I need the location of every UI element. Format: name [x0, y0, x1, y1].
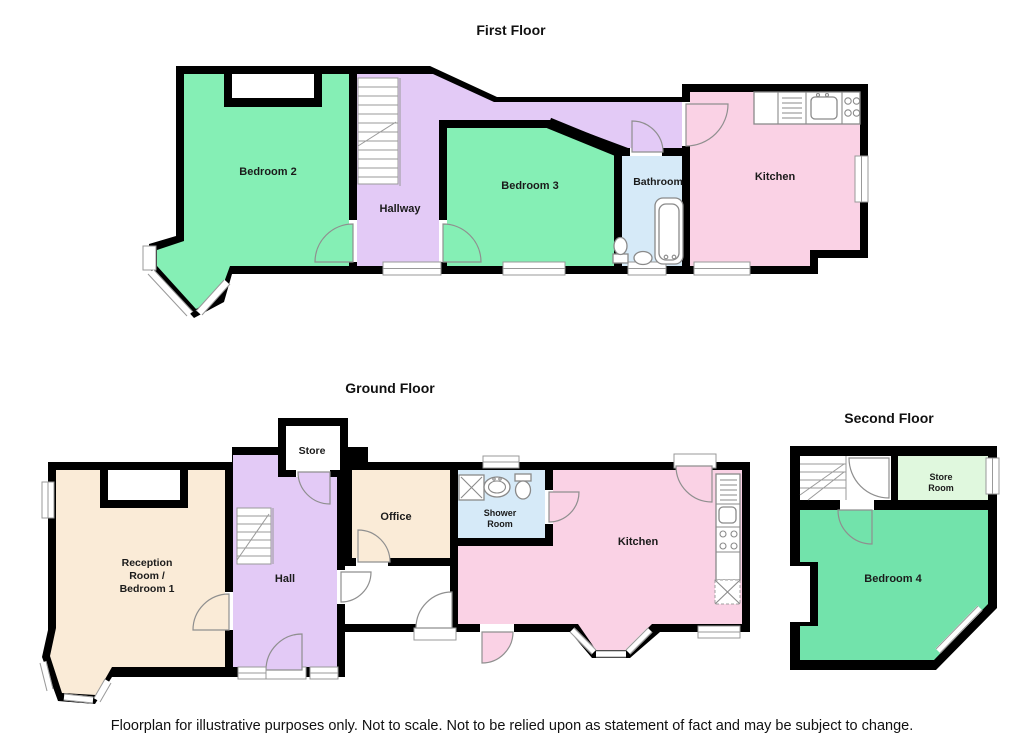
label-shower-2: Room — [487, 519, 513, 529]
kitchen-counter-icon — [754, 92, 860, 124]
label-reception-3: Bedroom 1 — [120, 583, 175, 595]
label-kitchen-gf: Kitchen — [618, 536, 659, 548]
wall — [447, 120, 553, 128]
disclaimer-text: Floorplan for illustrative purposes only… — [0, 718, 1024, 734]
chimney-inset-inner — [232, 74, 314, 98]
second-floor-plan: Store Room Bedroom 4 — [790, 446, 999, 670]
label-bedroom4: Bedroom 4 — [864, 573, 922, 585]
ground-floor-plan: Reception Room / Bedroom 1 Hall Store Of… — [40, 418, 750, 704]
sink-icon — [634, 252, 652, 265]
chimney-inset-inner — [108, 470, 180, 500]
label-office: Office — [380, 511, 411, 523]
toilet-icon — [613, 238, 628, 264]
doorway-frame — [414, 628, 456, 640]
stairs-ground-floor — [237, 508, 273, 564]
label-bedroom2: Bedroom 2 — [239, 166, 296, 178]
sink-icon — [484, 477, 510, 497]
wall — [225, 464, 233, 667]
first-floor-plan: Bedroom 2 Hallway Bedroom 3 Bathroom Kit… — [143, 66, 868, 318]
label-hallway: Hallway — [380, 203, 422, 215]
label-reception-1: Reception — [122, 557, 173, 569]
stairs-first-floor — [358, 78, 400, 186]
label-bathroom: Bathroom — [633, 176, 683, 188]
toilet-icon — [515, 474, 531, 499]
floorplan-page: First Floor Ground Floor Second Floor — [0, 0, 1024, 744]
door-gap — [840, 500, 874, 510]
label-store-room-2: Room — [928, 483, 954, 493]
label-shower-1: Shower — [484, 508, 517, 518]
label-kitchen-ff: Kitchen — [755, 171, 796, 183]
door-gap — [480, 624, 514, 632]
label-store-room-1: Store — [929, 472, 952, 482]
bathtub-icon — [655, 198, 683, 264]
label-store: Store — [299, 445, 326, 457]
sink-icon — [719, 507, 736, 523]
label-bedroom3: Bedroom 3 — [501, 180, 558, 192]
wall — [337, 455, 345, 632]
wall — [798, 500, 988, 510]
door-arc-kitchen-garden — [482, 632, 513, 663]
floorplan-canvas: Bedroom 2 Hallway Bedroom 3 Bathroom Kit… — [0, 0, 1024, 744]
shower-icon — [459, 475, 484, 500]
label-hall: Hall — [275, 573, 295, 585]
label-reception-2: Room / — [129, 570, 165, 582]
kitchen-appliances-icon — [715, 474, 740, 604]
wall — [455, 538, 553, 546]
wall — [891, 456, 898, 500]
sink-icon — [811, 97, 837, 119]
